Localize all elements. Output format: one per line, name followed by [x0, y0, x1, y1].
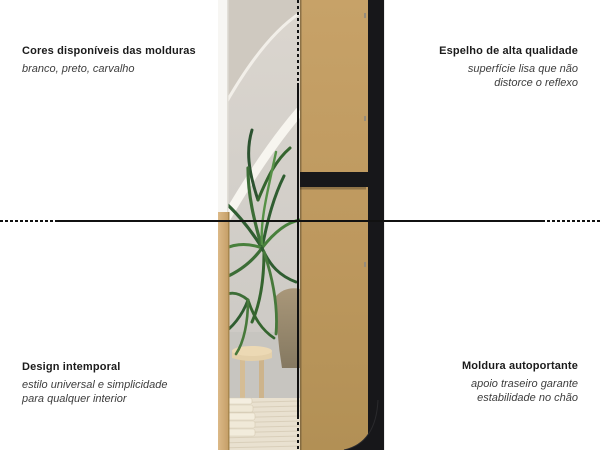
annotation-timeless-design: Design intemporal estilo universal e sim… — [22, 361, 168, 406]
oak-frame-strip — [218, 0, 230, 450]
product-infographic: Cores disponíveis das molduras branco, p… — [0, 0, 600, 450]
annotation-subtitle-line: estabilidade no chão — [462, 391, 578, 405]
annotation-mirror-quality: Espelho de alta qualidade superfície lis… — [439, 45, 578, 90]
annotation-subtitle: estilo universal e simplicidade para qua… — [22, 378, 168, 406]
annotation-subtitle-line: superfície lisa que não — [439, 62, 578, 76]
annotation-title: Espelho de alta qualidade — [439, 45, 578, 58]
annotation-title: Design intemporal — [22, 361, 168, 374]
annotation-subtitle-line: para qualquer interior — [22, 392, 168, 406]
divider-vertical-solid — [297, 83, 299, 416]
annotation-subtitle-line: estilo universal e simplicidade — [22, 378, 168, 392]
mirror-front-photo — [218, 0, 300, 450]
annotation-title: Cores disponíveis das molduras — [22, 45, 196, 58]
annotation-subtitle-line: distorce o reflexo — [439, 76, 578, 90]
frame-right-bar — [368, 0, 384, 450]
annotation-subtitle-line: branco, preto, carvalho — [22, 62, 196, 76]
frame-highlight — [384, 0, 385, 450]
divider-horizontal-dotted-left — [0, 220, 57, 222]
mdf-left-shadow — [300, 0, 302, 450]
divider-horizontal-solid — [57, 220, 542, 222]
annotation-subtitle-line: apoio traseiro garante — [462, 377, 578, 391]
annotation-frame-colors: Cores disponíveis das molduras branco, p… — [22, 45, 196, 76]
mirror-back-photo-art — [300, 0, 385, 450]
divider-vertical-dotted-top — [297, 0, 299, 83]
annotation-subtitle: apoio traseiro garante estabilidade no c… — [462, 377, 578, 405]
support-bar — [300, 172, 384, 187]
mirror-front-photo-art — [218, 0, 300, 450]
support-bar-shadow — [300, 187, 366, 190]
annotation-subtitle: branco, preto, carvalho — [22, 62, 196, 76]
divider-horizontal-dotted-right — [542, 220, 600, 222]
mirror-back-photo — [300, 0, 385, 450]
annotation-title: Moldura autoportante — [462, 360, 578, 373]
annotation-subtitle: superfície lisa que não distorce o refle… — [439, 62, 578, 90]
annotation-self-standing-frame: Moldura autoportante apoio traseiro gara… — [462, 360, 578, 405]
divider-vertical-dotted-bottom — [297, 416, 299, 450]
